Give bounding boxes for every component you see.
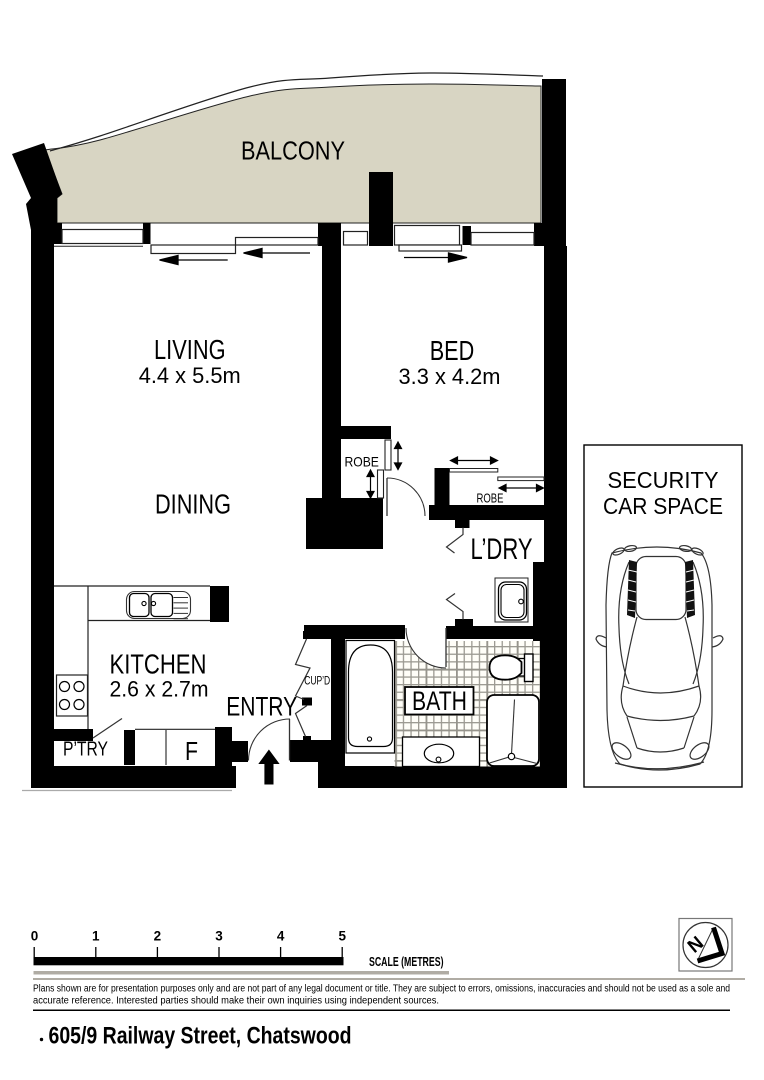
svg-text:5: 5 — [338, 928, 346, 943]
svg-text:1: 1 — [92, 928, 100, 943]
svg-text:3.3 x 4.2m: 3.3 x 4.2m — [399, 364, 501, 389]
svg-text:CAR SPACE: CAR SPACE — [603, 493, 723, 519]
svg-text:2.6 x 2.7m: 2.6 x 2.7m — [110, 677, 209, 702]
svg-text:BED: BED — [430, 335, 475, 366]
svg-text:P’TRY: P’TRY — [63, 739, 108, 761]
svg-text:DINING: DINING — [155, 489, 231, 520]
svg-text:4: 4 — [277, 928, 285, 943]
svg-text:L’DRY: L’DRY — [471, 533, 533, 566]
svg-text:ROBE: ROBE — [344, 454, 379, 470]
svg-text:605/9 Railway Street, Chatswoo: 605/9 Railway Street, Chatswood — [49, 1023, 352, 1050]
svg-text:accurate reference. Interested: accurate reference. Interested parties s… — [33, 996, 439, 1007]
svg-text:CUP’D: CUP’D — [304, 676, 330, 688]
svg-text:SCALE (METRES): SCALE (METRES) — [369, 954, 444, 969]
svg-text:3: 3 — [215, 928, 223, 943]
svg-text:BATH: BATH — [412, 686, 467, 716]
svg-text:BALCONY: BALCONY — [241, 138, 345, 166]
svg-text:Plans shown are for presentati: Plans shown are for presentation purpose… — [33, 984, 730, 995]
svg-text:4.4 x 5.5m: 4.4 x 5.5m — [139, 363, 241, 388]
svg-text:0: 0 — [31, 928, 39, 943]
svg-text:KITCHEN: KITCHEN — [110, 649, 207, 680]
svg-text:2: 2 — [154, 928, 162, 943]
svg-text:LIVING: LIVING — [154, 334, 226, 365]
svg-text:F: F — [185, 736, 198, 766]
svg-text:ROBE: ROBE — [477, 491, 504, 506]
svg-text:ENTRY: ENTRY — [226, 692, 297, 722]
svg-text:SECURITY: SECURITY — [608, 467, 719, 493]
